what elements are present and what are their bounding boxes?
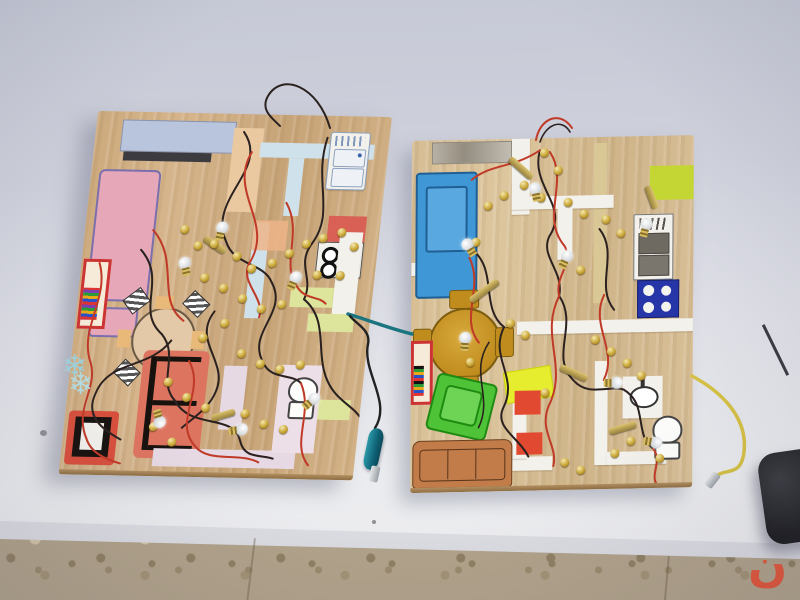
sofa-seats <box>419 448 505 482</box>
photo-scene: ❄ <box>0 0 800 600</box>
burner <box>661 286 671 296</box>
grey-fridge <box>633 213 673 280</box>
blue-burner-panel <box>637 279 679 318</box>
dark-strip <box>123 151 212 162</box>
red-cushion <box>516 432 542 455</box>
chair-pad <box>155 296 174 309</box>
bathroom-sink <box>623 376 663 419</box>
light-bulb <box>603 377 623 389</box>
sink-faucet <box>641 379 645 387</box>
sofa-divider <box>475 449 476 479</box>
watermark-arabic-noon: ن <box>748 542 787 588</box>
debris-speck <box>372 520 376 524</box>
sink-basin <box>630 386 659 409</box>
tv-set <box>64 410 120 465</box>
books <box>80 288 99 320</box>
clip-metal-jaw <box>368 465 380 483</box>
burner <box>643 285 654 296</box>
fridge-drawing <box>325 132 371 191</box>
teal-alligator-clip <box>362 427 385 471</box>
right-circuit-board <box>410 135 694 493</box>
left-circuit-board <box>59 111 392 480</box>
sofa-arm <box>157 356 202 362</box>
blue-bed <box>415 172 478 299</box>
tan-sofa <box>412 439 512 489</box>
fridge-vents <box>335 136 366 147</box>
debris-speck <box>40 430 47 436</box>
red-cushion <box>515 390 541 415</box>
chair-pad <box>116 329 131 347</box>
books <box>414 366 424 396</box>
gold-chair <box>495 327 514 357</box>
sofa-divider <box>447 449 448 479</box>
fridge-door-top <box>332 149 366 168</box>
snowflake-sticker: ❄ <box>62 352 87 382</box>
yellow-green-patch <box>650 165 694 200</box>
armchair-seat <box>438 384 484 428</box>
screwdriver <box>762 324 789 376</box>
grey-sketch <box>432 141 512 165</box>
tv-screen <box>79 423 104 450</box>
fridge-door-bottom <box>638 255 669 277</box>
dark-pouch <box>756 446 800 547</box>
burner <box>661 302 671 312</box>
green-wall-strip <box>307 313 355 332</box>
burner <box>643 302 654 313</box>
blue-headboard <box>120 119 237 153</box>
orange-patch <box>251 220 288 251</box>
metal-alligator-clip <box>704 471 721 489</box>
light-bulb <box>458 332 472 353</box>
bookshelf <box>411 341 433 405</box>
sofa-divider <box>152 400 197 406</box>
fridge-door-bottom <box>330 168 364 188</box>
